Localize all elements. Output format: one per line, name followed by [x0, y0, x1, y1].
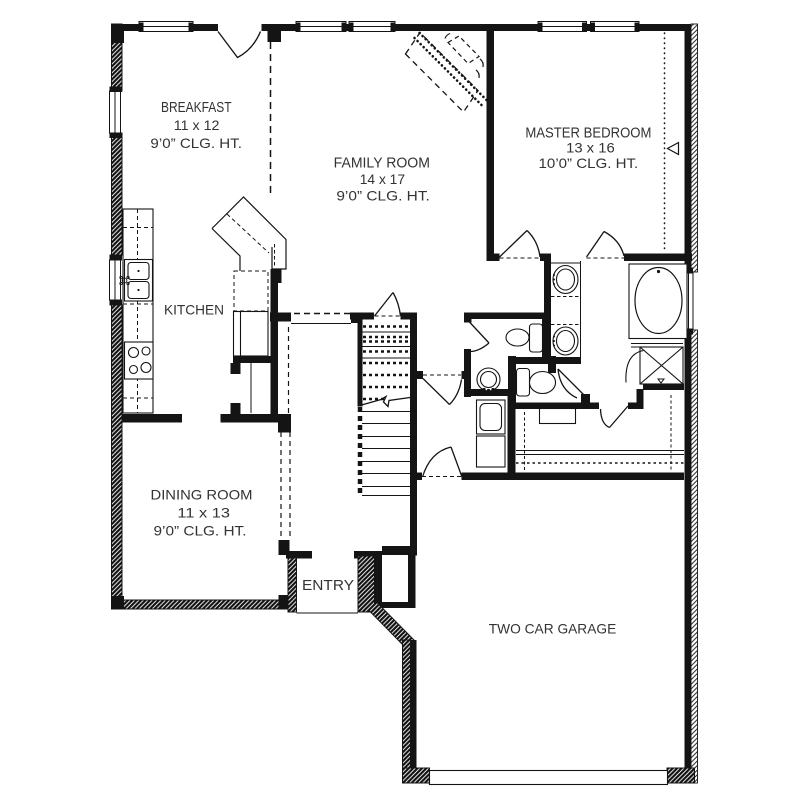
- svg-text:9’0” CLG. HT.: 9’0” CLG. HT.: [336, 187, 430, 203]
- svg-text:11 x 13: 11 x 13: [177, 505, 230, 521]
- svg-text:TWO CAR GARAGE: TWO CAR GARAGE: [489, 621, 617, 637]
- svg-text:ENTRY: ENTRY: [302, 578, 354, 594]
- svg-text:9’0” CLG. HT.: 9’0” CLG. HT.: [154, 523, 247, 539]
- svg-text:KITCHEN: KITCHEN: [164, 302, 224, 318]
- svg-text:9’0” CLG. HT.: 9’0” CLG. HT.: [150, 135, 242, 151]
- svg-text:10’0” CLG. HT.: 10’0” CLG. HT.: [539, 155, 639, 171]
- svg-text:13 x 16: 13 x 16: [566, 140, 615, 156]
- svg-text:DINING ROOM: DINING ROOM: [151, 487, 253, 503]
- svg-text:14 x 17: 14 x 17: [360, 171, 405, 187]
- svg-text:FAMILY ROOM: FAMILY ROOM: [334, 154, 430, 171]
- svg-text:BREAKFAST: BREAKFAST: [161, 100, 232, 116]
- svg-text:11 x 12: 11 x 12: [174, 117, 220, 133]
